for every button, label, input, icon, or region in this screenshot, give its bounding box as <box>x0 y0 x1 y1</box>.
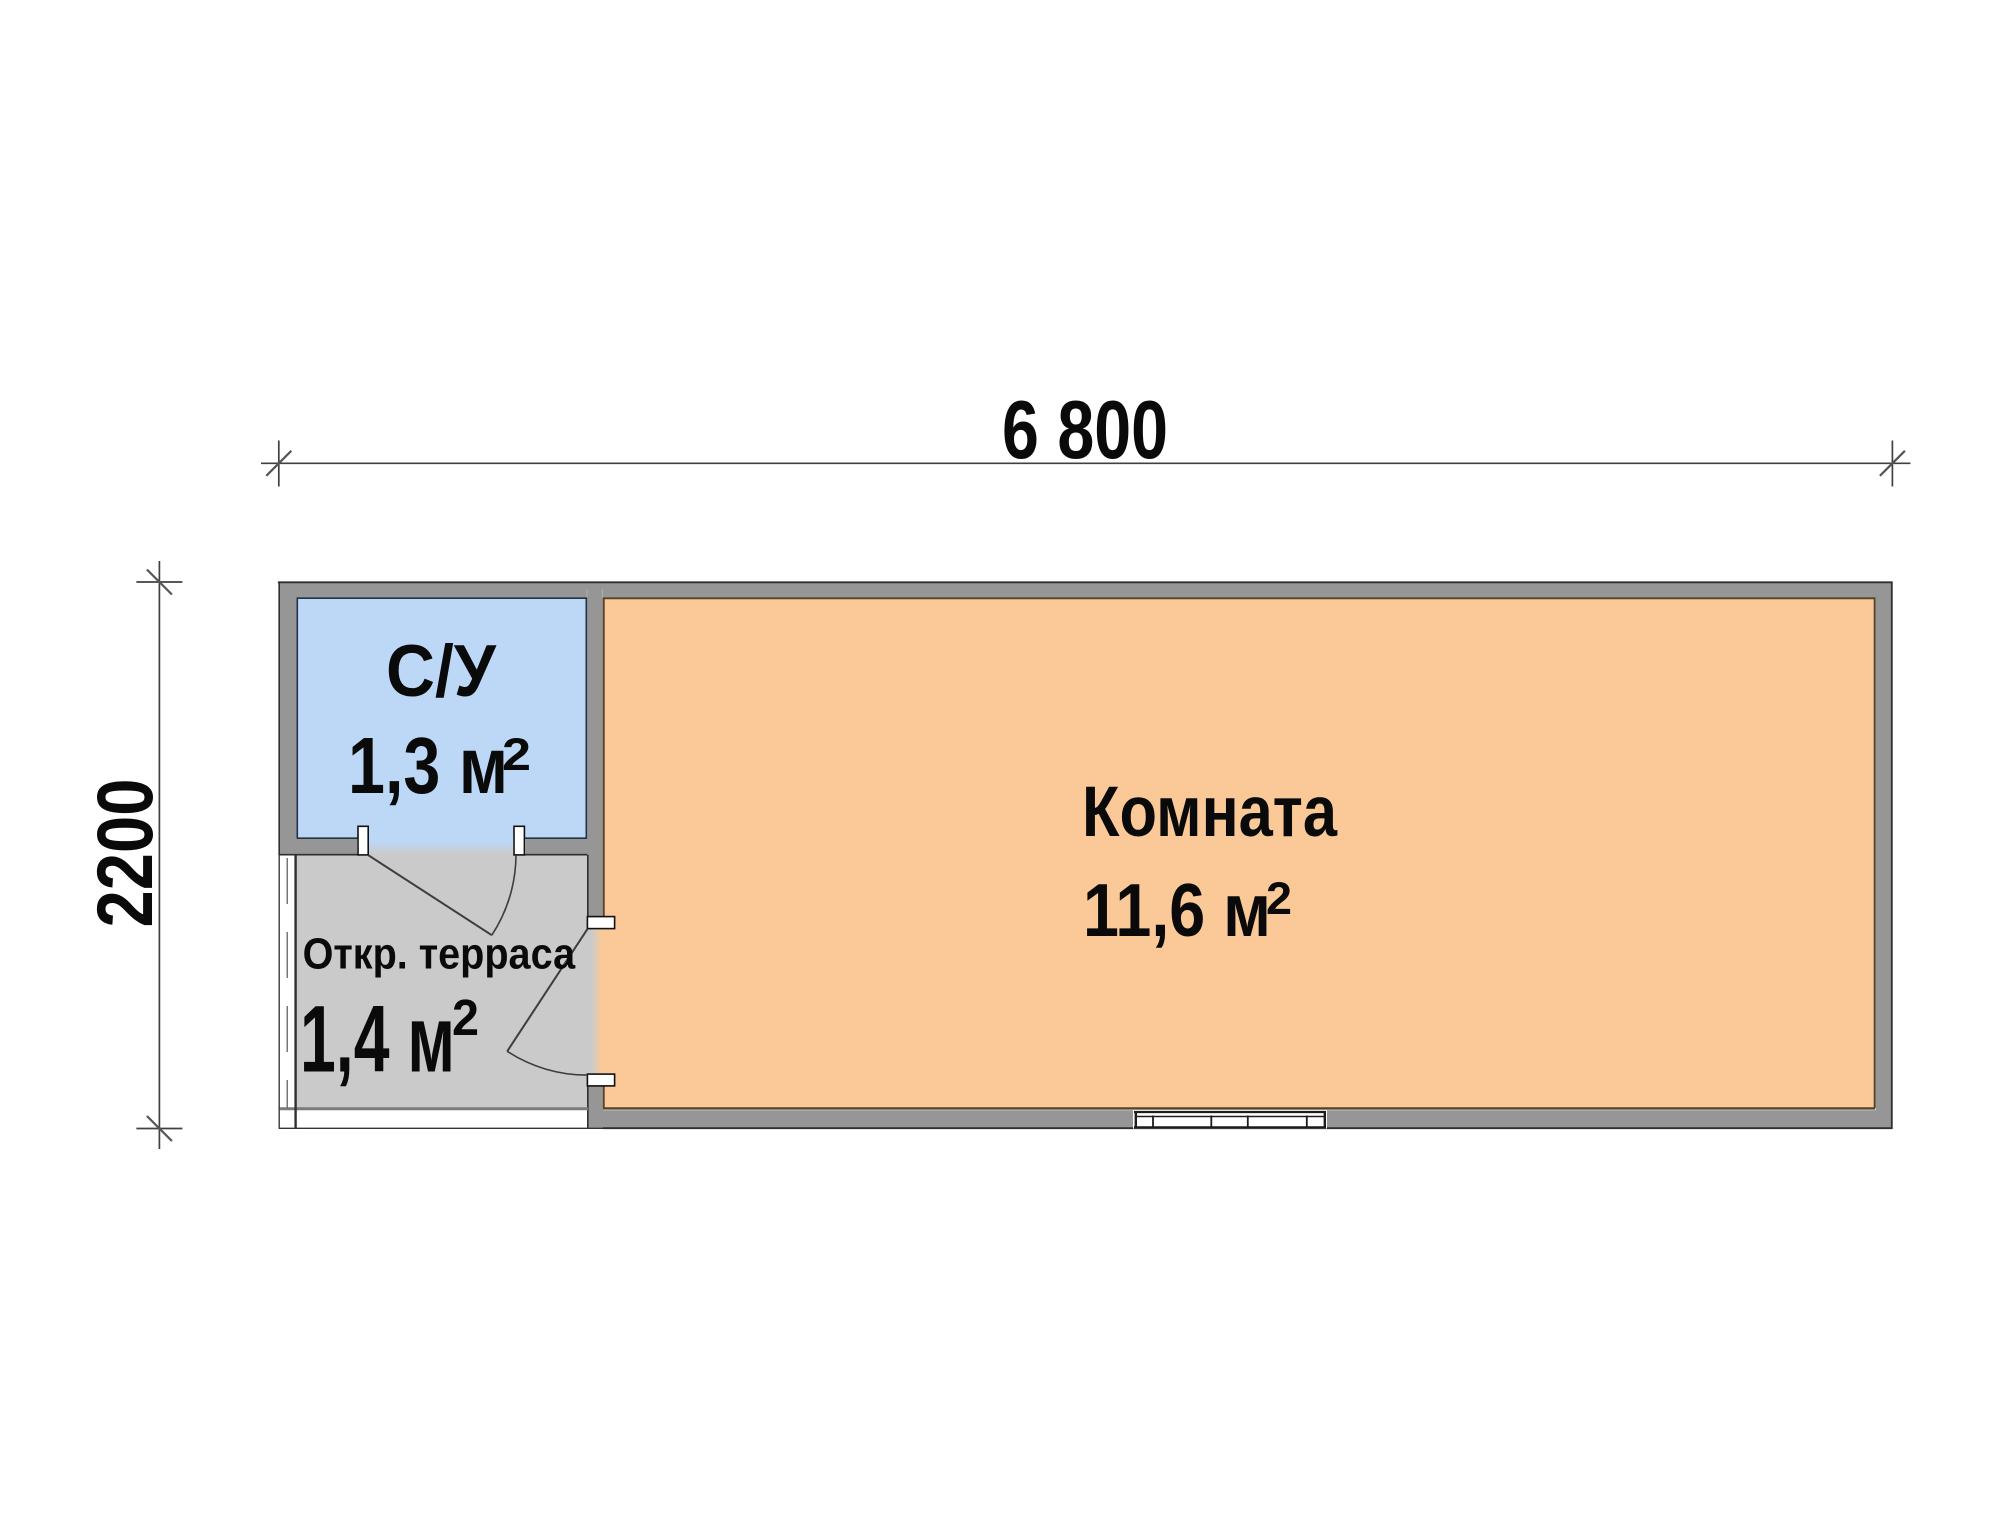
svg-text:Комната: Комната <box>1082 773 1338 852</box>
svg-text:2200: 2200 <box>81 779 169 928</box>
svg-text:С/У: С/У <box>386 631 497 712</box>
svg-text:2: 2 <box>1266 873 1292 924</box>
svg-text:1,3 м: 1,3 м <box>348 721 508 810</box>
svg-text:2: 2 <box>502 729 531 780</box>
svg-text:2: 2 <box>452 989 479 1046</box>
svg-text:11,6 м: 11,6 м <box>1083 869 1271 953</box>
svg-text:Откр. терраса: Откр. терраса <box>303 930 576 979</box>
svg-text:6 800: 6 800 <box>1002 383 1168 476</box>
svg-text:1,4 м: 1,4 м <box>300 987 455 1093</box>
